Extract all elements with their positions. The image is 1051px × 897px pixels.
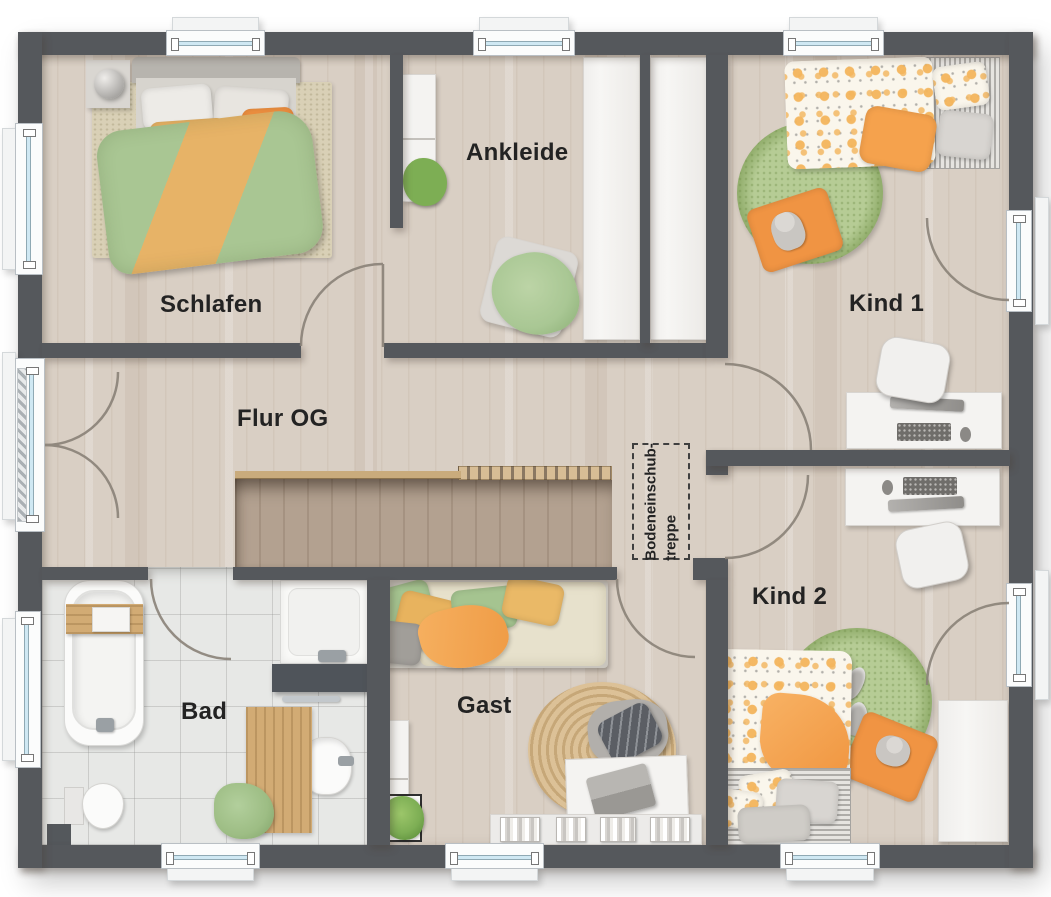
window-glass-ankleide-north — [479, 41, 569, 46]
window-sill-gast-south — [451, 867, 538, 881]
attic-hatch-label: Bodeneinschub- treppe — [642, 443, 681, 561]
wall-flur-north-west — [42, 343, 301, 358]
french-door-glass — [29, 368, 34, 522]
wall-kind1-kind2 — [706, 450, 1010, 466]
room-label-ankleide: Ankleide — [466, 139, 568, 167]
window-glass-kind1-north — [789, 41, 878, 46]
room-label-kind1: Kind 1 — [849, 290, 924, 318]
kind2-mouse — [882, 480, 893, 495]
bad-vanity-counter — [272, 664, 368, 692]
kind2-pillow-gray-2 — [737, 804, 811, 844]
attic-hatch-label-line1: Bodeneinschub- — [642, 443, 662, 561]
window-glass-schlafen-north — [172, 41, 259, 46]
french-door-shutter — [17, 368, 27, 522]
gast-books-2 — [556, 817, 586, 842]
bad-tub-faucet — [96, 718, 114, 732]
kind1-pillow-polka — [931, 60, 991, 111]
stair-railing — [235, 471, 461, 479]
window-sill-schlafen-west — [2, 128, 16, 270]
kind1-keyboard — [897, 423, 951, 441]
room-label-schlafen: Schlafen — [160, 291, 262, 319]
bad-sink-faucet — [338, 756, 354, 766]
window-glass-bad-south — [167, 855, 254, 860]
gast-books-3 — [600, 817, 636, 842]
balcony-door-glass-kind1 — [1016, 216, 1021, 306]
kind2-wardrobe — [938, 700, 1008, 842]
room-label-kind2: Kind 2 — [752, 583, 827, 611]
room-label-flur-og: Flur OG — [237, 405, 328, 433]
ankleide-plant — [403, 158, 447, 206]
stairwell-opening — [235, 479, 612, 567]
window-sill-flur-balcony — [2, 352, 16, 520]
kind1-pillow-gray — [936, 109, 995, 160]
window-sill-bad-south — [167, 867, 254, 881]
bad-towel-bar — [282, 696, 340, 702]
window-sill-kind2-south — [786, 867, 874, 881]
gast-books-1 — [500, 817, 540, 842]
gast-books-4 — [650, 817, 690, 842]
bad-corner-block — [47, 824, 71, 846]
kind1-chair — [873, 334, 952, 405]
wall-stairwell-south — [233, 567, 617, 580]
wall-bad-north — [42, 567, 148, 580]
wall-bad-gast — [367, 580, 390, 845]
window-glass-schlafen-west — [26, 130, 31, 268]
window-glass-gast-south — [451, 855, 538, 860]
kind1-orange-blanket — [858, 104, 939, 174]
bad-shower-mixer — [318, 650, 346, 662]
window-sill-kind2-east — [1035, 570, 1049, 700]
stair-treads — [458, 466, 612, 480]
wall-gast-connector — [693, 558, 728, 580]
ankleide-cabinet-divider — [403, 138, 435, 140]
wall-outer-right — [1009, 32, 1033, 868]
ankleide-wardrobe-left — [583, 57, 640, 340]
bad-caddy-towel — [92, 607, 130, 632]
window-sill-kind1-east — [1035, 197, 1049, 325]
attic-hatch-box: Bodeneinschub- treppe — [632, 443, 690, 560]
schlafen-duvet — [94, 107, 326, 276]
bad-shower-tray — [288, 588, 360, 656]
room-label-gast: Gast — [457, 692, 512, 720]
wall-schlafen-ankleide — [390, 55, 403, 228]
room-label-bad: Bad — [181, 698, 227, 726]
window-sill-bad-west — [2, 618, 16, 761]
kind2-keyboard — [903, 477, 957, 495]
wall-gast-kind2 — [706, 580, 728, 845]
ankleide-wardrobe-right — [650, 57, 707, 340]
floor-plan: Schlafen Ankleide Kind 1 Flur OG Bad Gas… — [0, 0, 1051, 897]
schlafen-lamp — [94, 69, 124, 99]
bad-toilet-tank — [64, 787, 84, 825]
kind1-mouse — [960, 427, 971, 442]
attic-hatch-label-line2: treppe — [661, 443, 681, 561]
wall-flur-north-east — [384, 343, 706, 358]
window-glass-kind2-south — [786, 855, 874, 860]
wall-hall-east-upper — [706, 55, 728, 358]
balcony-door-glass-kind2 — [1016, 589, 1021, 681]
wall-wardrobe-divider — [640, 55, 650, 343]
window-glass-bad-west — [24, 618, 29, 761]
